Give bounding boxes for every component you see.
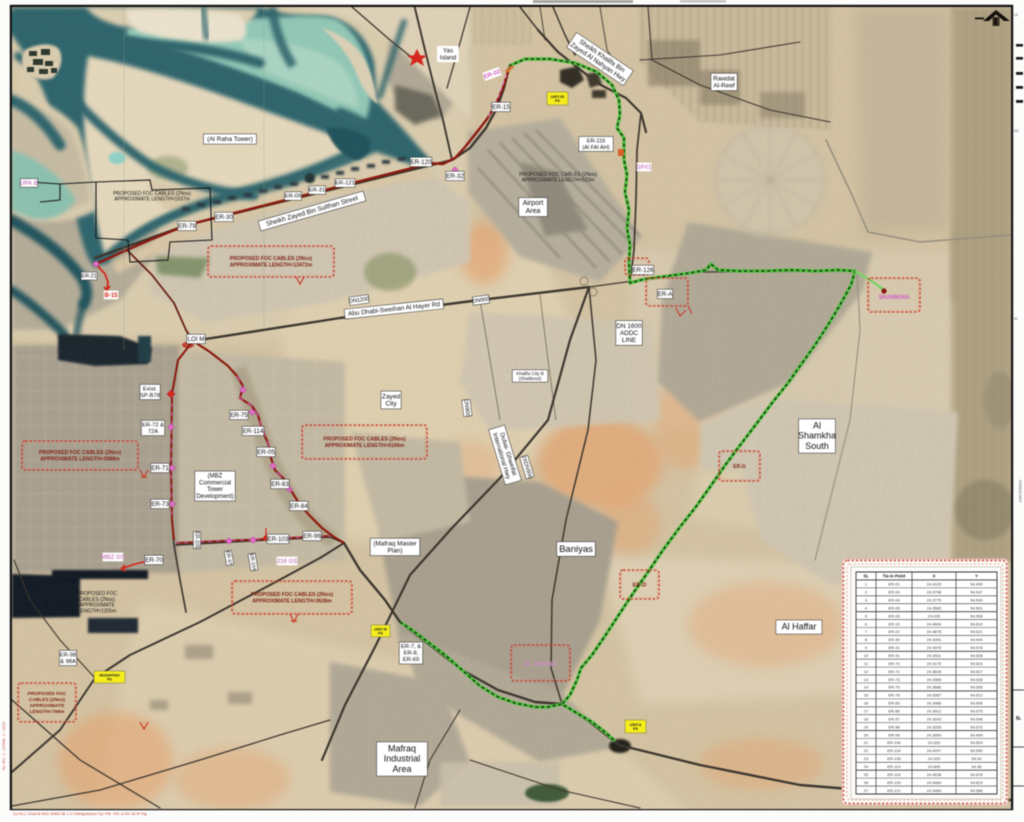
svg-text:Al: Al (813, 421, 821, 431)
svg-text:APPROXIMATE LENGTH=6166m: APPROXIMATE LENGTH=6166m (325, 443, 405, 449)
svg-text:(Al FAl AH): (Al FAl AH) (582, 145, 609, 151)
svg-text:ER-09: ER-09 (285, 194, 301, 200)
svg-text:AL WATBA: AL WATBA (523, 661, 557, 668)
svg-text:54.578: 54.578 (970, 645, 983, 650)
svg-text:72A: 72A (148, 429, 158, 435)
svg-text:Zayed: Zayed (382, 393, 401, 400)
svg-text:24.3954: 24.3954 (927, 732, 942, 737)
svg-text:(Mafraq Master: (Mafraq Master (373, 540, 417, 547)
svg-text:LENGTH=798m: LENGTH=798m (30, 709, 65, 715)
svg-text:Tie-in Point: Tie-in Point (883, 574, 906, 579)
svg-text:54.544: 54.544 (970, 637, 983, 642)
svg-text:ER-126: ER-126 (633, 267, 655, 274)
svg-text:ER-116: ER-116 (587, 139, 606, 145)
svg-text:ER-04: ER-04 (888, 598, 900, 603)
svg-text:ER-09: ER-09 (888, 613, 900, 618)
svg-text:54.503: 54.503 (970, 740, 983, 745)
svg-text:54.623: 54.623 (970, 780, 983, 785)
svg-text:ER-96: ER-96 (303, 533, 321, 540)
svg-text:ER-83: ER-83 (888, 701, 900, 706)
svg-text:24.4694: 24.4694 (927, 621, 942, 626)
svg-text:PROPOSED FOC CABLES (2Nos): PROPOSED FOC CABLES (2Nos) (251, 592, 333, 598)
svg-text:PS: PS (107, 677, 112, 681)
svg-text:ER-99: ER-99 (888, 732, 900, 737)
svg-text:ER-7, &: ER-7, & (401, 644, 421, 650)
svg-text:ER-114: ER-114 (243, 428, 264, 435)
svg-text:ER-73: ER-73 (151, 501, 169, 508)
svg-text:24.4247: 24.4247 (927, 748, 942, 753)
svg-text:ER-72 &: ER-72 & (142, 423, 164, 429)
svg-text:ER-104: ER-104 (887, 748, 901, 753)
svg-text:LE: LE (1014, 13, 1018, 17)
svg-text:ER-72: ER-72 (888, 669, 900, 674)
svg-text:54.586: 54.586 (970, 788, 983, 793)
svg-text:Commercial: Commercial (199, 480, 231, 486)
svg-text:ER-116: ER-116 (887, 772, 901, 777)
svg-text:26: 26 (864, 780, 869, 785)
svg-text:APPROXIMATE LENGTH=13472m: APPROXIMATE LENGTH=13472m (230, 263, 313, 269)
svg-text:SP#1: SP#1 (637, 165, 652, 171)
svg-text:Shamkha: Shamkha (798, 431, 836, 441)
svg-text:18: 18 (864, 716, 869, 721)
svg-text:MBZ GS: MBZ GS (101, 555, 124, 561)
svg-text:24.329: 24.329 (928, 756, 941, 761)
svg-text:APPROXIMATE LENGTH=3988m: APPROXIMATE LENGTH=3988m (40, 457, 120, 463)
svg-text:ER-05: ER-05 (257, 449, 275, 456)
svg-text:ER-114: ER-114 (887, 764, 901, 769)
svg-text:Development): Development) (196, 494, 233, 500)
svg-text:& 98A: & 98A (60, 659, 76, 665)
svg-text:24.6287: 24.6287 (927, 693, 942, 698)
svg-text:APPROXIMATE LENGTH=3628m: APPROXIMATE LENGTH=3628m (252, 599, 332, 605)
svg-text:24.3775: 24.3775 (927, 598, 942, 603)
svg-text:ER-105: ER-105 (887, 756, 901, 761)
svg-text:10: 10 (864, 653, 869, 658)
svg-text:ER-120: ER-120 (887, 780, 901, 785)
svg-text:PROPOSED FOC CABLES (2Nos): PROPOSED FOC CABLES (2Nos) (230, 256, 312, 262)
svg-text:23: 23 (864, 756, 869, 761)
svg-text:17: 17 (864, 709, 869, 714)
svg-text:LOI M: LOI M (188, 336, 205, 343)
svg-text:APPROXIMATE LENGTH=1937m: APPROXIMATE LENGTH=1937m (114, 197, 190, 203)
svg-text:ER-05: ER-05 (888, 605, 900, 610)
svg-text:54.512: 54.512 (970, 693, 983, 698)
svg-text:54.499: 54.499 (970, 732, 983, 737)
svg-text:ER-31: ER-31 (888, 645, 900, 650)
svg-text:ER-69: ER-69 (403, 657, 419, 663)
svg-text:24.4878: 24.4878 (927, 629, 942, 634)
svg-text:ER-70: ER-70 (145, 557, 163, 564)
svg-text:ER-120: ER-120 (411, 159, 433, 166)
svg-text:24.3243: 24.3243 (927, 716, 942, 721)
svg-text:54.508: 54.508 (970, 701, 983, 706)
svg-text:SP-B78: SP-B78 (140, 393, 160, 399)
svg-text:ER-84: ER-84 (290, 503, 308, 510)
svg-text:ER-03: ER-03 (888, 590, 900, 595)
svg-text:ER-A: ER-A (658, 291, 674, 298)
svg-text:24.3385: 24.3385 (927, 677, 942, 682)
svg-text:ER-121: ER-121 (335, 181, 355, 187)
svg-text:ER-21: ER-21 (81, 274, 96, 280)
svg-text:(Shakbout): (Shakbout) (519, 376, 542, 381)
svg-text:24.3486: 24.3486 (927, 701, 942, 706)
svg-text:24.4376: 24.4376 (927, 645, 942, 650)
svg-text:24.3628: 24.3628 (927, 669, 942, 674)
svg-text:54.610: 54.610 (970, 621, 983, 626)
svg-text:ADDC: ADDC (620, 330, 638, 337)
svg-text:54.523: 54.523 (970, 661, 983, 666)
svg-text:216 GS: 216 GS (277, 559, 297, 565)
svg-text:PS: PS (633, 727, 638, 731)
svg-text:PROPOSED FOC CABLES (2Nos): PROPOSED FOC CABLES (2Nos) (39, 450, 121, 456)
svg-text:54.621: 54.621 (970, 629, 983, 634)
svg-text:ER-70: ER-70 (888, 661, 900, 666)
svg-text:ER-100: ER-100 (887, 740, 901, 745)
svg-text:CABLES (2Nos): CABLES (2Nos) (29, 697, 65, 703)
svg-text:LINE: LINE (622, 337, 636, 344)
svg-text:ER-89: ER-89 (888, 709, 900, 714)
svg-text:UPA B: UPA B (20, 181, 39, 187)
svg-text:ER-105: ER-105 (194, 532, 200, 549)
svg-text:24.805: 24.805 (928, 764, 941, 769)
svg-text:54.550: 54.550 (970, 748, 983, 753)
svg-text:LENGTH=1205m: LENGTH=1205m (78, 608, 117, 614)
svg-text:27: 27 (864, 788, 869, 793)
svg-text:54.499: 54.499 (970, 582, 983, 587)
svg-text:25: 25 (864, 772, 869, 777)
svg-text:24.435: 24.435 (928, 613, 941, 618)
svg-text:CONSULTANT: CONSULTANT (1018, 480, 1022, 502)
svg-text:19: 19 (864, 724, 869, 729)
svg-text:APPROXIMATE: APPROXIMATE (30, 703, 66, 709)
svg-text:12: 12 (864, 669, 869, 674)
svg-text:54.555: 54.555 (970, 685, 983, 690)
svg-text:N-: N- (1016, 716, 1022, 722)
svg-text:Tower: Tower (207, 487, 223, 493)
svg-text:ER-30: ER-30 (888, 637, 900, 642)
svg-text:ER-75: ER-75 (888, 685, 900, 690)
svg-text:Cp No.1, Draw-B 4001 9/M02 AE: Cp No.1, Draw-B 4001 9/M02 AE 1 b C/Mmgu… (13, 812, 147, 816)
svg-text:SHAMKHA: SHAMKHA (879, 295, 910, 301)
svg-text:ER-103: ER-103 (268, 536, 290, 543)
svg-text:(Al Raha Tower): (Al Raha Tower) (207, 136, 253, 143)
svg-text:16: 16 (864, 701, 869, 706)
svg-text:24.3175: 24.3175 (927, 661, 942, 666)
svg-text:Y: Y (975, 574, 978, 579)
svg-text:PS: PS (378, 631, 383, 635)
svg-text:54.575: 54.575 (970, 724, 983, 729)
svg-text:54.528: 54.528 (970, 677, 983, 682)
svg-text:54.54: 54.54 (971, 756, 982, 761)
svg-text:ER-98: ER-98 (888, 724, 900, 729)
svg-text:ER-78: ER-78 (888, 693, 900, 698)
svg-text:PROPOSED FOC: PROPOSED FOC (28, 691, 67, 697)
svg-text:54.501: 54.501 (970, 605, 983, 610)
svg-text:ER-D: ER-D (633, 583, 647, 589)
svg-text:Area: Area (392, 764, 411, 774)
svg-text:24.3686: 24.3686 (927, 685, 942, 690)
svg-text:24.325: 24.325 (928, 740, 941, 745)
svg-text:X: X (933, 574, 936, 579)
svg-text:ER-22: ER-22 (888, 629, 900, 634)
svg-text:ER-32: ER-32 (446, 173, 464, 180)
svg-text:54.549: 54.549 (970, 598, 983, 603)
svg-text:NO: NO (1014, 129, 1019, 133)
svg-text:Industrial: Industrial (384, 754, 421, 764)
svg-text:ER-71: ER-71 (151, 465, 169, 472)
svg-text:ER-97: ER-97 (888, 716, 900, 721)
svg-text:Al Haffar: Al Haffar (782, 622, 817, 632)
svg-text:14: 14 (864, 685, 869, 690)
svg-text:24.3255: 24.3255 (927, 724, 942, 729)
svg-text:Rawdat: Rawdat (713, 75, 735, 82)
svg-text:54.527: 54.527 (970, 669, 983, 674)
svg-text:PS: PS (555, 99, 560, 103)
svg-text:54.508: 54.508 (970, 613, 983, 618)
svg-text:ER-75: ER-75 (230, 412, 248, 419)
svg-text:ER-01: ER-01 (888, 582, 900, 587)
svg-text:PROPOSED FOC CABLES (2Nos): PROPOSED FOC CABLES (2Nos) (323, 437, 405, 443)
svg-text:Mafraq: Mafraq (388, 744, 416, 754)
svg-text:ER-10: ER-10 (888, 621, 900, 626)
svg-text:54.548: 54.548 (970, 716, 983, 721)
svg-text:15: 15 (864, 693, 869, 698)
svg-text:54.528: 54.528 (970, 653, 983, 658)
svg-text:ER-83: ER-83 (271, 481, 289, 488)
svg-text:24.3912: 24.3912 (927, 709, 942, 714)
svg-text:20: 20 (864, 732, 869, 737)
svg-text:90: 90 (1014, 317, 1018, 321)
svg-text:ER-31: ER-31 (309, 188, 325, 194)
svg-text:(MBZ: (MBZ (208, 474, 223, 480)
svg-text:ER-41: ER-41 (888, 653, 900, 658)
svg-text:Area: Area (526, 208, 541, 215)
svg-text:No. 900 - 1 - 017244 - 1 - 000: No. 900 - 1 - 017244 - 1 - 00000 (2, 721, 6, 770)
svg-text:Exist.: Exist. (143, 387, 158, 393)
svg-text:APPROXIMATE LENGTH=520m: APPROXIMATE LENGTH=520m (522, 178, 595, 184)
svg-text:54.36: 54.36 (971, 764, 982, 769)
svg-text:B-15: B-15 (104, 293, 118, 299)
svg-text:ER-G: ER-G (733, 464, 746, 470)
svg-text:ER-98: ER-98 (60, 653, 76, 659)
svg-text:South: South (805, 441, 829, 451)
svg-text:ER-73: ER-73 (888, 677, 900, 682)
svg-text:Plan): Plan) (388, 548, 403, 555)
svg-text:24.4469: 24.4469 (927, 788, 942, 793)
svg-text:City: City (385, 401, 397, 408)
svg-text:SL: SL (863, 574, 869, 579)
svg-text:ER-79: ER-79 (178, 223, 196, 230)
svg-text:24.4538: 24.4538 (927, 772, 942, 777)
svg-text:21: 21 (864, 740, 869, 745)
svg-text:Baniyas: Baniyas (559, 544, 593, 555)
svg-text:22: 22 (864, 748, 869, 753)
svg-text:Al-Reef: Al-Reef (713, 83, 735, 90)
svg-text:ER-30: ER-30 (215, 214, 233, 221)
svg-text:DN 1600: DN 1600 (616, 323, 642, 330)
svg-text:24.4281: 24.4281 (927, 637, 942, 642)
svg-text:24.4125: 24.4125 (927, 582, 942, 587)
svg-text:Airport: Airport (523, 200, 544, 207)
svg-text:54.678: 54.678 (970, 772, 983, 777)
svg-text:24: 24 (864, 764, 869, 769)
svg-text:ER-121: ER-121 (887, 788, 901, 793)
svg-text:13: 13 (864, 677, 869, 682)
svg-text:54.547: 54.547 (970, 590, 983, 595)
svg-text:Island: Island (440, 54, 457, 61)
svg-text:24.4483: 24.4483 (927, 780, 942, 785)
svg-text:ER-8,: ER-8, (404, 651, 419, 657)
svg-text:ER-15: ER-15 (492, 104, 510, 111)
svg-text:24.3798: 24.3798 (927, 590, 942, 595)
svg-text:54.575: 54.575 (970, 709, 983, 714)
svg-text:24.3511: 24.3511 (927, 653, 942, 658)
svg-text:24.3583: 24.3583 (927, 605, 942, 610)
